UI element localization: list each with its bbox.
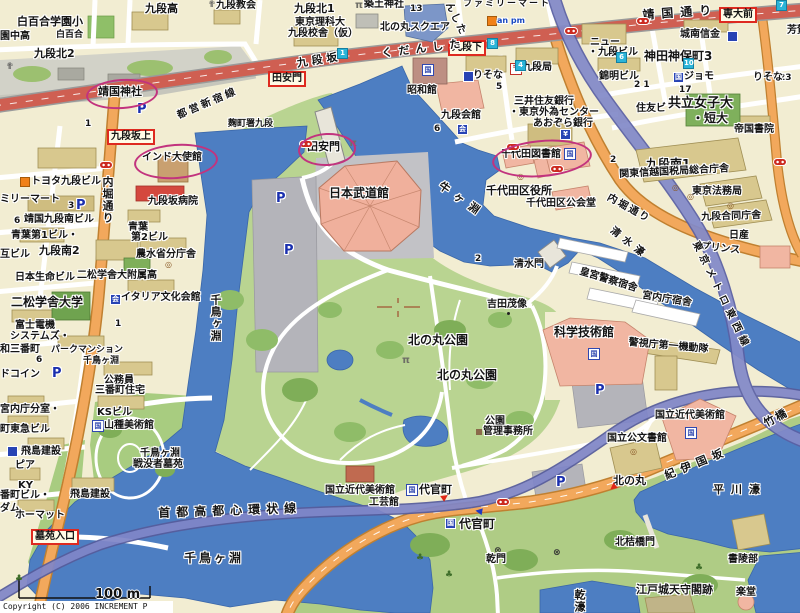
tayasumon-stop-box: 田安門 (268, 71, 306, 87)
map-label: ◎ (630, 448, 637, 456)
map-label: 築土神社 (364, 0, 404, 10)
map-label: 錦明ビル (599, 72, 639, 82)
edo-castle-keep-label: 江戸城天守閣跡 (636, 584, 713, 595)
map-label: an pm (497, 17, 525, 25)
map-label: 日産 (729, 231, 749, 241)
map-label: 工芸館 (369, 498, 399, 508)
map-label: 九段会館 (441, 111, 481, 121)
map-label: 吉田茂像 (487, 300, 527, 310)
uchibori-dori-label: 内堀通り (605, 193, 652, 225)
map-label: 九段南2 (39, 245, 80, 256)
map-label: 和三番町 (0, 345, 40, 355)
map-label: ♣ (15, 575, 23, 584)
map-label (476, 429, 482, 435)
map-label: 九段合同庁舎 (701, 211, 761, 223)
map-label: 町東急ビル (0, 425, 50, 435)
bus-stop-icon (637, 18, 649, 24)
toei-shinjuku-line-label: 都営新宿線 (176, 87, 240, 122)
map-label: 3 (68, 202, 74, 211)
takebashi-label: 竹橋 (762, 407, 790, 429)
map-label: 九段校舎（仮） (288, 29, 358, 39)
map-label: 6 (434, 125, 440, 134)
map-label: ¥ (560, 129, 571, 140)
inuimon-label: 乾門 (486, 555, 506, 565)
map-label: 九段教会 (216, 1, 256, 11)
annotation-yasukuni-shrine (85, 77, 159, 112)
map-label: りそな (753, 73, 783, 83)
annotation-india-embassy (133, 141, 219, 182)
map-label: 国 (685, 427, 697, 439)
map-label: 靖国九段南ビル (24, 215, 94, 225)
shimizumon-label: 清水門 (514, 260, 544, 270)
shimizubori-label: 清水濠 (608, 226, 650, 262)
map-label: 10 (683, 58, 694, 69)
map-label: 白百合 (56, 31, 83, 40)
map-label: 互ビル (0, 250, 30, 260)
ushigafuchi-label: 牛ヶ淵 (437, 180, 488, 220)
map-label: 三番町住宅 (95, 386, 145, 396)
map-label: P (556, 476, 566, 489)
map-label: ◎ (672, 184, 679, 192)
map-label: 6 (36, 356, 42, 365)
map-label: ファミリーマート (463, 0, 551, 9)
copyright-notice: Copyright (C) 2006 INCREMENT P CORP. (0, 601, 173, 613)
map-label: ・九段ビル (588, 48, 638, 58)
map-label: 芳賀 (787, 26, 800, 36)
map-label: 楽堂 (736, 588, 756, 598)
map-label: 2 (475, 255, 481, 264)
map-label: 千鳥ヶ淵 (83, 357, 119, 366)
map-label (20, 177, 30, 187)
inuibori-label: 乾濠 (574, 589, 585, 613)
map-label: 九段高 (145, 3, 178, 14)
map-label: 九段坂病院 (148, 197, 198, 207)
map-label: 第2ビル (131, 233, 168, 243)
map-label: 神田神保町3 (644, 50, 712, 62)
map-label: パークマンション (51, 346, 123, 355)
map-label: 九段北2 (34, 48, 75, 59)
map-label: 東京法務局 (692, 187, 742, 197)
map-label: 1 (337, 48, 348, 59)
map-label: 番町ビル・ (0, 491, 50, 501)
map-label: 会 (110, 294, 121, 305)
map-label: 昭和館 (407, 86, 437, 96)
map-label (507, 312, 510, 315)
map-label: 飛島建設 (21, 447, 61, 457)
map-label: 宮内庁分室・ (0, 405, 60, 415)
map-label: P (276, 192, 286, 205)
bus-stop-icon (100, 162, 112, 168)
map-label: ピア (15, 461, 35, 471)
map-label: ◎ (165, 261, 172, 269)
tozai-line-label: 東京メトロ東西線 (690, 240, 752, 352)
map-label: 住友ビ (636, 104, 666, 114)
map-label: 書陵部 (728, 555, 758, 565)
map-label: 17 (679, 86, 692, 95)
chidorigafuchi-label: 千鳥ヶ淵 (184, 552, 244, 564)
map-label (7, 446, 18, 457)
map-label: 7 (776, 0, 787, 11)
map-label: 二松学舎大附属高 (77, 271, 157, 281)
map-label: 1 (115, 320, 121, 329)
map-label: 関東信越国税局総合庁舎 (619, 164, 729, 180)
map-label: 戦没者墓苑 (133, 460, 183, 470)
map-label: 九段北1 (294, 3, 335, 14)
map-label: 4 (515, 60, 526, 71)
map-label: ✟ (6, 63, 14, 72)
map-label: 三井住友銀行 (514, 97, 574, 107)
map-label: π (355, 1, 363, 11)
map-label: 富士電機 (15, 321, 55, 331)
map-label: ⊗ (553, 549, 561, 558)
map-label (727, 31, 738, 42)
map-label: 会 (457, 124, 468, 135)
cemetery-entrance-box: 墓苑入口 (31, 529, 79, 545)
map-label: ホーマット (15, 511, 65, 521)
map-label: 国 (445, 518, 456, 529)
budokan-label: 日本武道館 (329, 187, 389, 199)
map-label: 日本生命ビル (15, 273, 75, 283)
map-label: ドコイン (0, 370, 40, 380)
map-label: 皇宮警察宿舎 (578, 267, 638, 294)
map-label: P (76, 199, 86, 212)
map-label: P (52, 367, 62, 380)
map-label: 白百合学園小 (17, 16, 83, 27)
map-label: 2 (610, 156, 616, 165)
yasukuni-dori-label: 靖国通り (642, 4, 719, 21)
map-label: 国 (673, 72, 684, 83)
map-label: 二松学舎大学 (11, 296, 83, 308)
map-label: 東京理科大 (295, 18, 345, 28)
map-label: KSビル (97, 408, 132, 418)
kudanzaka-label: 九段坂 (296, 51, 342, 69)
map-label: 北の丸スクエア (380, 23, 450, 33)
map-label: 5 (496, 83, 502, 92)
map-label: 飛島建設 (70, 490, 110, 500)
bus-stop-icon (774, 159, 786, 165)
bus-stop-icon (565, 28, 577, 34)
chidorigafuchi-moat-label: 千鳥ヶ淵 (210, 294, 221, 342)
map-label: P (284, 244, 294, 257)
map-label: 警視庁第一機動隊 (628, 338, 709, 355)
bus-stop-icon (497, 499, 509, 505)
momat-label: 国立近代美術館 (655, 411, 725, 421)
map-label: 6 (616, 52, 627, 63)
kiinokunizaka-label: 紀伊国坂 (663, 446, 730, 482)
map-label: 8 (487, 38, 498, 49)
map-label: イタリア文化会館 (121, 293, 201, 303)
science-museum-label: 科学技術館 (554, 326, 614, 338)
kitanomaru-stop-label: 北の丸 (613, 475, 646, 486)
map-label: 青葉第1ビル・ (11, 231, 78, 241)
map-label (487, 16, 497, 26)
uchibori-dori-west-label: 内堀通り (102, 176, 113, 224)
map-label: ♣ (445, 571, 453, 580)
kitahanebashimon-label: 北桔橋門 (615, 538, 655, 548)
map-label: 共立女子大 (668, 97, 733, 110)
shuto-expressway-label: 首都高都心環状線 (158, 502, 302, 519)
map-label: ♣ (416, 554, 424, 563)
map-label: 千代田区公会堂 (526, 199, 596, 209)
map-label: 九段局 (522, 63, 552, 73)
map-label: システムズ・ (10, 332, 70, 342)
map-label: 管理事務所 (483, 427, 533, 437)
map-label: 13 (410, 5, 423, 14)
kudanzakaue-box: 九段坂上 (107, 129, 155, 145)
chiyoda-ward-office-label: 千代田区役所 (486, 185, 552, 196)
map-label: りそな (473, 71, 503, 81)
daikancho-label: 代官町 (459, 518, 495, 530)
hirakawabori-label: 平川濠 (713, 484, 767, 495)
map-label: ◎ (727, 202, 734, 210)
map-label: 国 (422, 64, 434, 76)
map-label: 1 (85, 120, 91, 129)
map-label: 6 (14, 217, 20, 226)
map-label: ◀ (474, 507, 482, 517)
map-label: あおぞら銀行 (533, 119, 593, 129)
map-label: 2 1 (634, 81, 650, 90)
map-label: 農水省分庁舎 (136, 250, 196, 260)
map-label: ♣ (695, 564, 703, 573)
map-label: トヨタ九段ビル (31, 177, 101, 187)
kitanomaru-park-label-2: 北の丸公園 (437, 369, 497, 381)
national-archives-label: 国立公文書館 (607, 434, 667, 444)
map-label: 山種美術館 (104, 421, 154, 431)
map-label: π (402, 356, 410, 366)
scale-label: 100 m (95, 587, 140, 602)
map-label: 城南信金 (680, 30, 720, 40)
map-label: 国立近代美術館 (325, 486, 395, 496)
map-label: 帝国書院 (734, 125, 774, 135)
map-label: 園中高 (0, 32, 30, 42)
label-layer: 白百合学園小園中高白百合九段北2九段高✟九段教会✟九段北1π築土神社13東京理科… (0, 0, 800, 613)
sendaimae-stop-box: 専大前 (719, 7, 757, 23)
map-viewport[interactable]: 白百合学園小園中高白百合九段北2九段高✟九段教会✟九段北1π築土神社13東京理科… (0, 0, 800, 613)
map-label: ◎ (687, 193, 694, 201)
annotation-tayasumon (297, 132, 357, 168)
map-label: 麹町署九段 (228, 120, 273, 129)
map-label: 国 (406, 484, 418, 496)
map-label: 宮内庁宿舎 (641, 291, 692, 309)
map-label: ミリーマート (0, 195, 60, 205)
map-label: ジョモ (684, 72, 714, 82)
map-label: 千鳥ヶ淵 (140, 449, 180, 459)
map-label: ・東京外為センター (509, 108, 599, 118)
map-label (463, 71, 474, 82)
map-label: 国 (92, 420, 104, 432)
map-label: ・短大 (692, 112, 728, 124)
annotation-chiyoda-library (491, 136, 594, 182)
kitanomaru-park-label: 北の丸公園 (408, 334, 468, 346)
map-label: ✟ (208, 1, 216, 10)
map-label: 国 (588, 348, 600, 360)
map-label: P (595, 384, 605, 397)
